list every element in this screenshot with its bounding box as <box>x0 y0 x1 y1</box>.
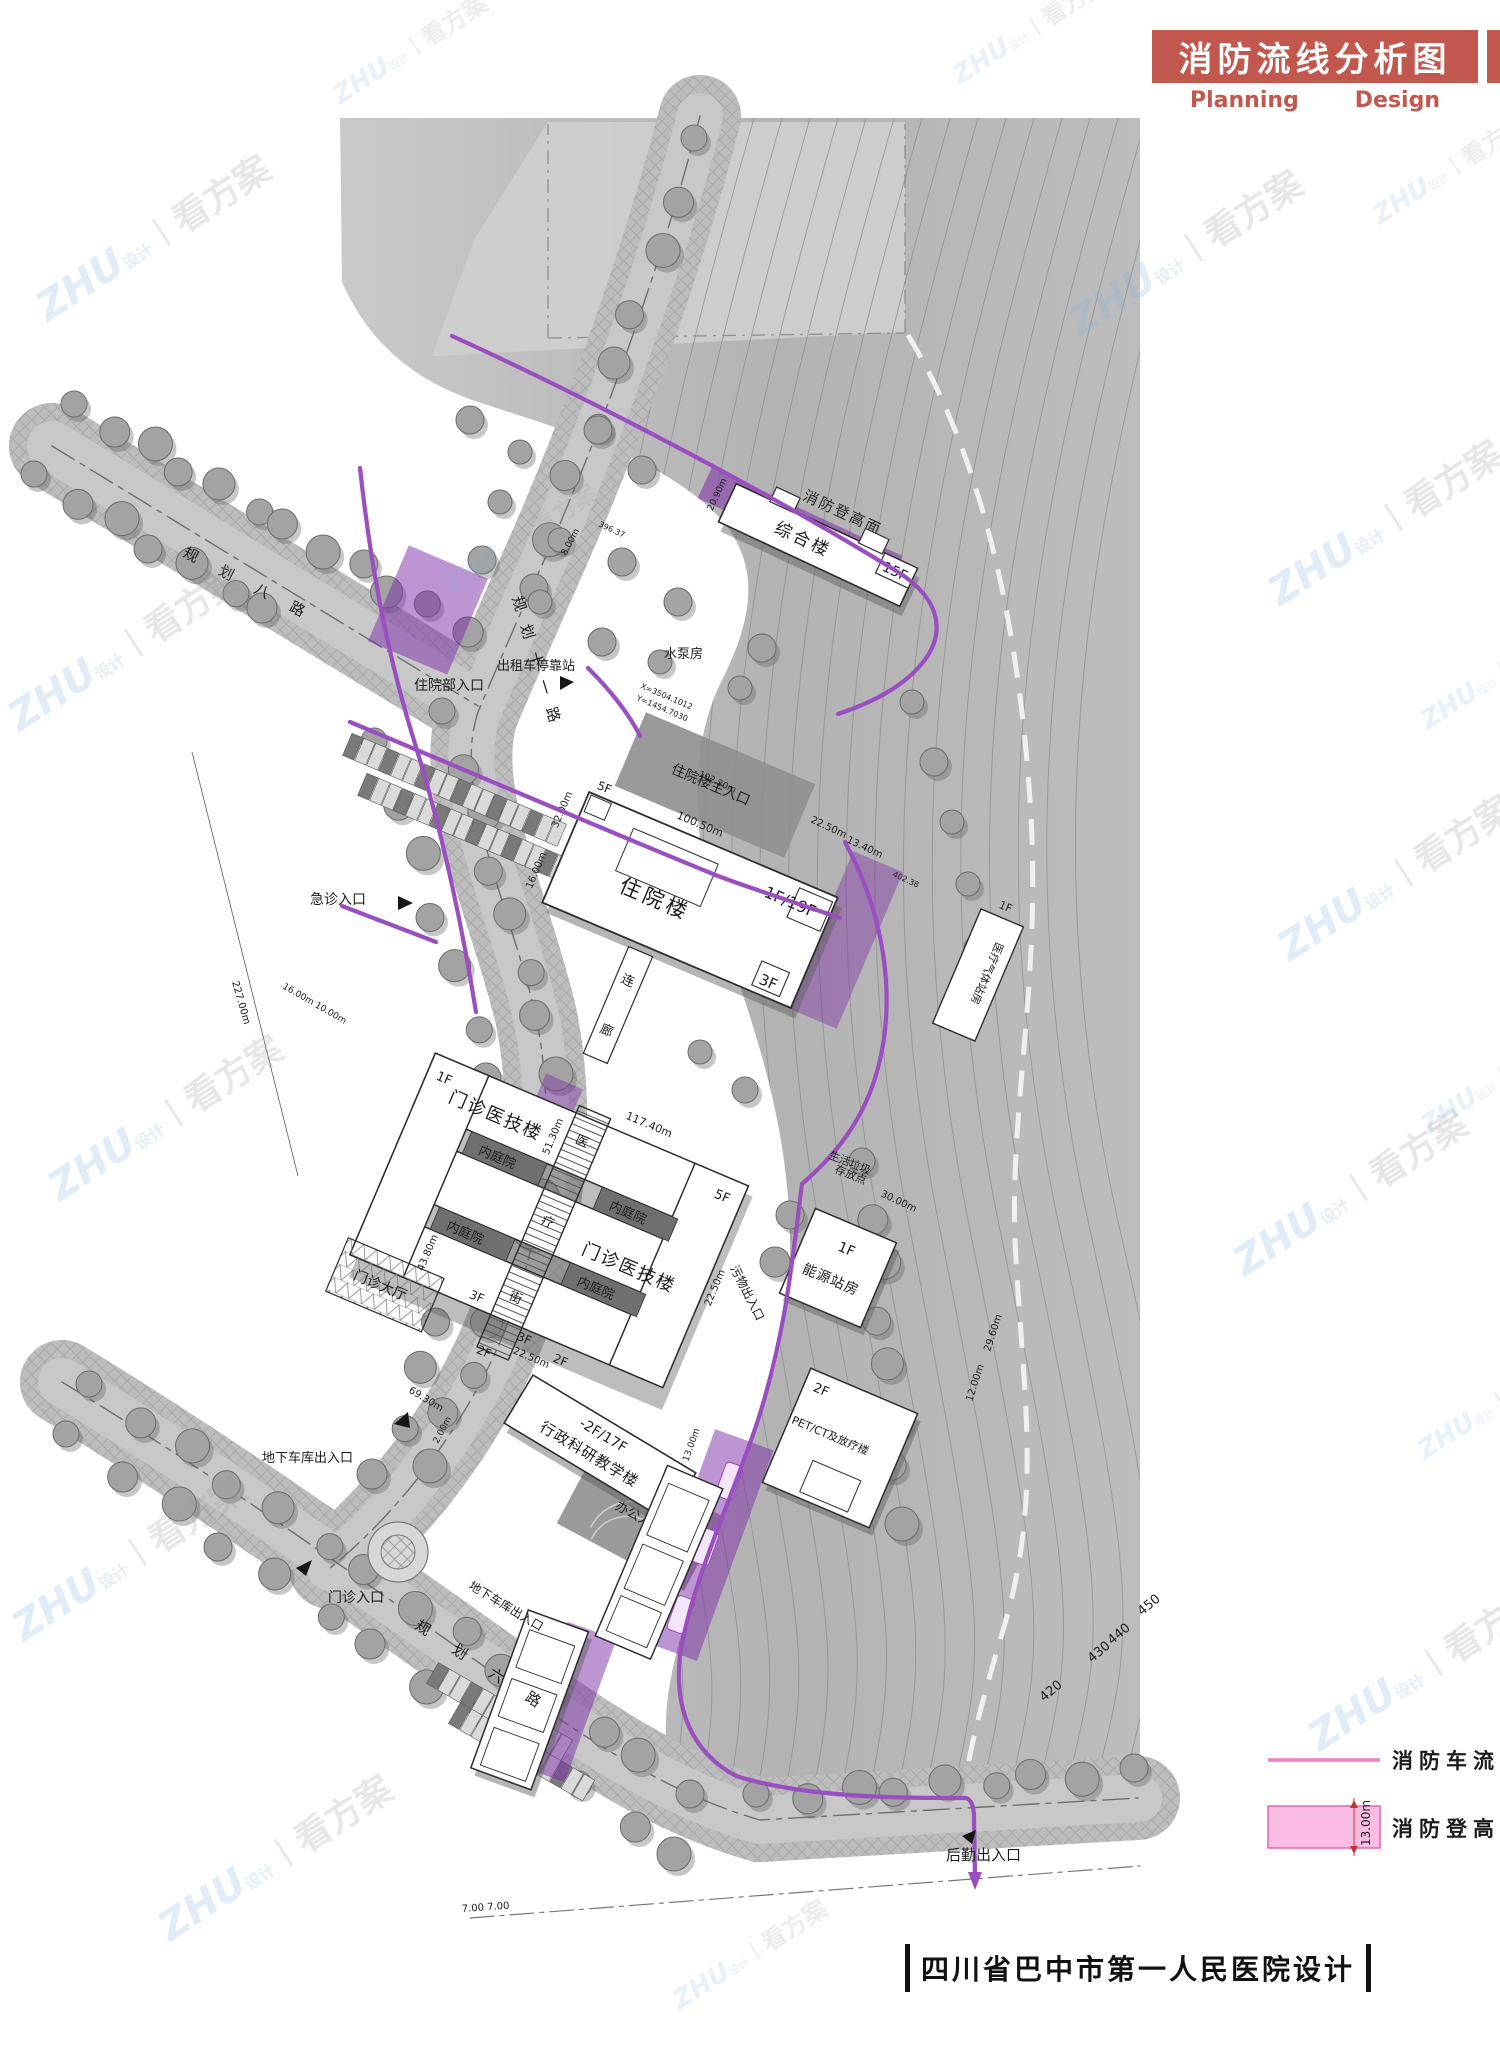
fire-analysis-sheet: 450 440 430 420 住院楼主入口 <box>0 0 1500 2052</box>
waste-exit-label: 污物出入口 <box>727 1263 767 1323</box>
garage-entrance-label-1: 地下车库出入口 <box>262 1450 353 1466</box>
dim-16-10: 16.00m 10.00m <box>281 982 348 1027</box>
emergency-entrance-label: 急诊入口 <box>310 892 366 908</box>
building-corridor: 连 廊 <box>583 947 652 1064</box>
taxi-stop-label: 出租车停靠站 <box>497 658 575 674</box>
logistics-entrance-label: 后勤出入口 <box>946 1846 1021 1864</box>
title-divider-bar <box>905 1944 910 1992</box>
menzhen-f5-west: 5F <box>595 778 614 797</box>
dim-arrow-icon <box>1350 1846 1358 1854</box>
sheet-subtitle: Planning Design <box>1152 88 1478 113</box>
entrance-arrow-icon <box>398 896 413 910</box>
site-plan-drawing: 450 440 430 420 住院楼主入口 <box>0 0 1500 2052</box>
roundabout-inner <box>381 1535 415 1569</box>
sheet-title: 消防流线分析图 <box>1179 32 1452 81</box>
subtitle-planning: Planning <box>1190 88 1299 113</box>
flow-line-inpatient-spur <box>588 668 640 736</box>
dim-227: 227.00m <box>229 980 252 1026</box>
banner-edge-block <box>1487 30 1500 83</box>
south-slope-line <box>470 1866 1140 1918</box>
dim-arrow-icon <box>1350 1800 1358 1808</box>
subtitle-design: Design <box>1355 88 1440 113</box>
legend-climb-label: 消防登高面 <box>1392 1817 1500 1841</box>
inpatient-entrance-label: 住院部入口 <box>414 678 484 694</box>
sheet-title-banner: 消防流线分析图 <box>1152 30 1478 83</box>
flow-arrow-icon <box>968 1872 982 1890</box>
outpatient-entrance-label: 门诊入口 <box>328 1590 384 1606</box>
pump-house-label: 水泵房 <box>664 646 703 662</box>
dim-7-7: 7.00 7.00 <box>461 1901 509 1915</box>
title-divider-bar <box>1366 1944 1371 1992</box>
project-title: 四川省巴中市第一人民医院设计 <box>921 1948 1355 1988</box>
legend-route-label: 消防车流线 <box>1392 1749 1500 1773</box>
elev-396: 396.37 <box>597 520 626 540</box>
legend-climb-width: 13.00m <box>1359 1800 1373 1846</box>
project-title-block: 四川省巴中市第一人民医院设计 <box>905 1944 1371 1992</box>
legend: 消防车流线 13.00m 消防登高面 <box>1268 1749 1500 1856</box>
dim-13-00-strip: 13.00m <box>681 1427 702 1463</box>
entrance-arrow-icon <box>560 676 574 690</box>
